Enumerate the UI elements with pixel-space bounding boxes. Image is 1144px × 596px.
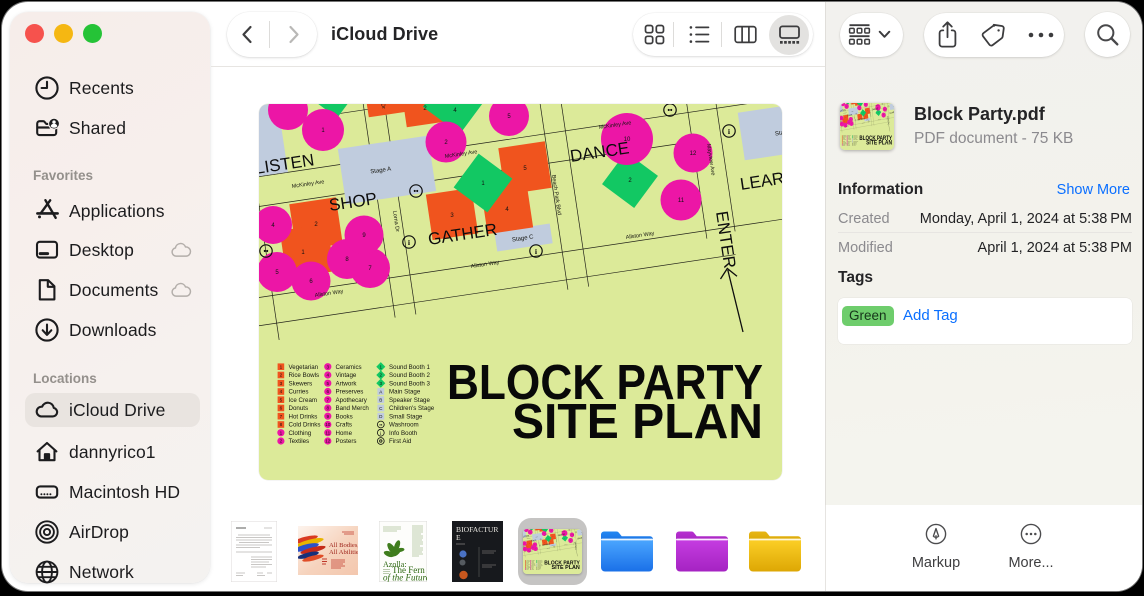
svg-text:Sound Booth 3: Sound Booth 3 bbox=[389, 380, 430, 387]
svg-text:6: 6 bbox=[327, 389, 330, 394]
svg-text:Vintage: Vintage bbox=[336, 372, 357, 379]
svg-text:of the Future: of the Future bbox=[383, 573, 427, 583]
svg-text:3: 3 bbox=[380, 381, 383, 386]
svg-text:Skewers: Skewers bbox=[289, 380, 313, 387]
svg-text:1: 1 bbox=[280, 430, 283, 435]
svg-text:All Abilities: All Abilities bbox=[329, 549, 358, 556]
svg-text:Info Booth: Info Booth bbox=[389, 430, 418, 437]
svg-text:Sound Booth 1: Sound Booth 1 bbox=[389, 364, 430, 371]
svg-text:4: 4 bbox=[280, 389, 283, 394]
svg-text:B: B bbox=[379, 398, 382, 403]
svg-text:BIOFACTUR: BIOFACTUR bbox=[456, 525, 499, 534]
svg-text:Children's Stage: Children's Stage bbox=[389, 405, 435, 412]
svg-text:8: 8 bbox=[327, 406, 330, 411]
svg-text:Vegetarian: Vegetarian bbox=[289, 364, 319, 371]
svg-text:Books: Books bbox=[336, 413, 353, 420]
svg-text:2: 2 bbox=[380, 373, 383, 378]
svg-text:Donuts: Donuts bbox=[289, 405, 309, 412]
svg-text:2: 2 bbox=[280, 373, 283, 378]
svg-text:Ceramics: Ceramics bbox=[336, 364, 362, 371]
svg-text:5: 5 bbox=[327, 381, 330, 386]
svg-text:All Bodies,: All Bodies, bbox=[329, 542, 358, 549]
svg-text:Cold Drinks: Cold Drinks bbox=[289, 422, 321, 429]
svg-text:9: 9 bbox=[327, 414, 330, 419]
svg-text:10: 10 bbox=[325, 422, 331, 427]
svg-text:3: 3 bbox=[327, 364, 330, 369]
svg-text:Small Stage: Small Stage bbox=[389, 413, 423, 420]
svg-text:2: 2 bbox=[280, 439, 283, 444]
svg-text:Speaker Stage: Speaker Stage bbox=[389, 397, 430, 404]
svg-text:E: E bbox=[456, 533, 461, 542]
svg-text:Sound Booth 2: Sound Booth 2 bbox=[389, 372, 430, 379]
svg-text:Home: Home bbox=[336, 430, 353, 437]
svg-text:11: 11 bbox=[678, 198, 685, 204]
svg-text:1: 1 bbox=[380, 364, 383, 369]
svg-text:3: 3 bbox=[280, 381, 283, 386]
svg-text:Preserves: Preserves bbox=[336, 389, 364, 396]
svg-text:Hot Drinks: Hot Drinks bbox=[289, 413, 318, 420]
svg-text:Main Stage: Main Stage bbox=[389, 389, 421, 396]
svg-text:8: 8 bbox=[280, 422, 283, 427]
svg-text:6: 6 bbox=[280, 406, 283, 411]
svg-text:••: •• bbox=[668, 108, 673, 115]
svg-text:Artwork: Artwork bbox=[336, 380, 358, 387]
svg-text:7: 7 bbox=[327, 397, 330, 402]
svg-text:••: •• bbox=[379, 422, 383, 427]
svg-text:Rice Bowls: Rice Bowls bbox=[289, 372, 320, 379]
svg-text:Band Merch: Band Merch bbox=[336, 405, 370, 412]
svg-text:1: 1 bbox=[280, 364, 283, 369]
svg-text:••: •• bbox=[264, 249, 269, 256]
svg-text:Clothing: Clothing bbox=[289, 430, 312, 437]
svg-text:Curries: Curries bbox=[289, 389, 309, 396]
svg-text:11: 11 bbox=[325, 430, 330, 435]
svg-text:12: 12 bbox=[690, 151, 697, 157]
svg-text:First Aid: First Aid bbox=[389, 438, 412, 445]
svg-text:5: 5 bbox=[280, 397, 283, 402]
svg-text:4: 4 bbox=[327, 373, 330, 378]
svg-text:Posters: Posters bbox=[336, 438, 357, 445]
svg-text:SITE PLAN: SITE PLAN bbox=[512, 395, 763, 449]
svg-text:12: 12 bbox=[325, 439, 331, 444]
svg-text:••: •• bbox=[414, 189, 419, 196]
svg-text:7: 7 bbox=[280, 414, 283, 419]
svg-text:Washroom: Washroom bbox=[389, 422, 419, 429]
svg-text:Apothecary: Apothecary bbox=[336, 397, 368, 404]
svg-text:Crafts: Crafts bbox=[336, 422, 353, 429]
svg-text:Textiles: Textiles bbox=[289, 438, 310, 445]
svg-text:Ice Cream: Ice Cream bbox=[289, 397, 318, 404]
